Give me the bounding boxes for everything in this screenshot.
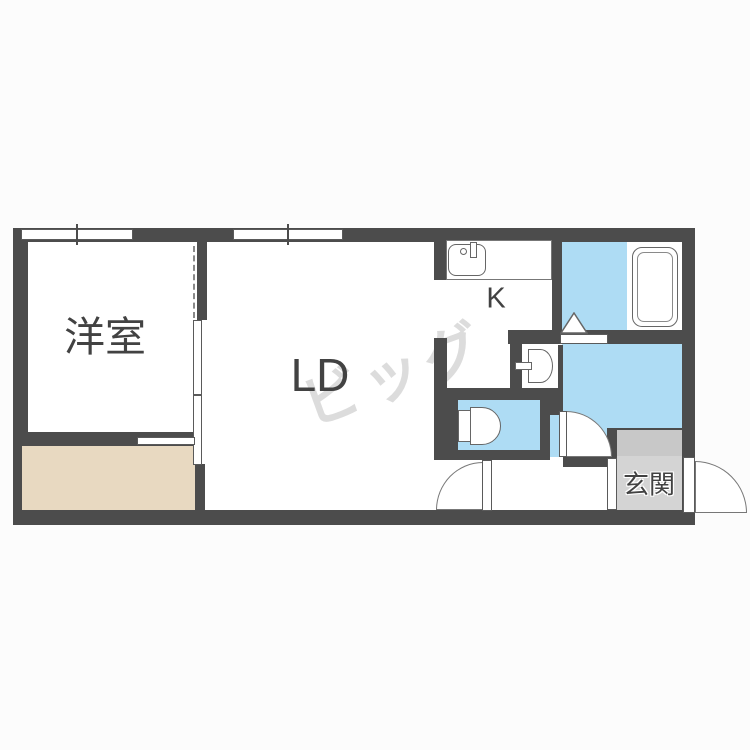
living-dining-label: LD — [291, 348, 350, 402]
entrance-door-swing-arc — [695, 461, 747, 513]
kitchen-label: K — [486, 283, 505, 316]
sliding-door-split — [194, 394, 201, 396]
wall-bottom — [13, 510, 695, 525]
entrance-label: 玄関 — [623, 465, 675, 502]
bathroom-door-triangle-icon — [560, 312, 588, 334]
entrance-door-leaf — [683, 457, 695, 513]
bathtub-inner — [637, 252, 673, 322]
closet-opening — [137, 437, 195, 445]
entrance-inner-door — [607, 458, 617, 510]
washbasin-faucet-icon — [515, 362, 532, 370]
bathroom-door-bar — [560, 334, 608, 344]
wall-bedroom-ld-upper — [197, 242, 207, 320]
wall-toilet-bottom — [434, 450, 550, 460]
wall-left — [13, 228, 28, 446]
sink-faucet-icon — [470, 242, 477, 258]
floor-plan: ビッグ — [0, 0, 750, 750]
western-room-label: 洋室 — [64, 303, 146, 363]
entrance-step — [617, 428, 682, 456]
window-center-tick — [76, 224, 78, 245]
door-leaf — [482, 460, 492, 511]
overhead-opening-dashed-line — [193, 246, 195, 318]
door-leaf — [559, 411, 567, 457]
kitchen-sink-icon — [448, 244, 486, 276]
wall-bedroom-ld-lower — [195, 464, 205, 510]
wall-toilet-top — [434, 388, 563, 400]
sink-drain-icon — [460, 248, 467, 255]
window-center-tick — [287, 224, 289, 245]
bathtub-icon — [632, 247, 678, 327]
closet-floor — [22, 446, 197, 510]
